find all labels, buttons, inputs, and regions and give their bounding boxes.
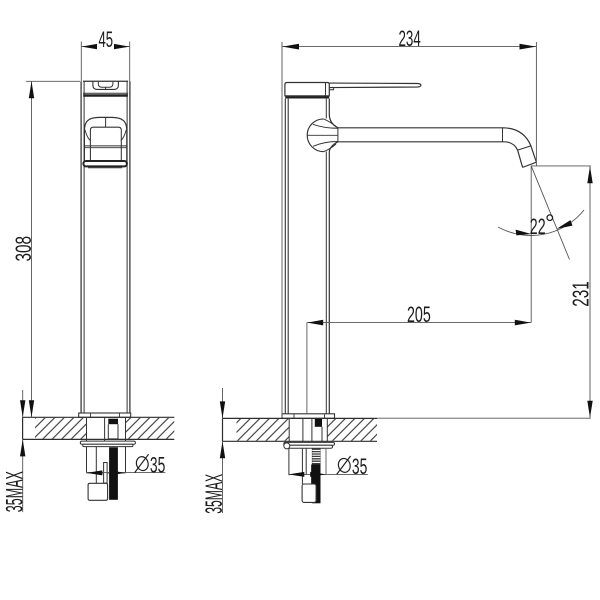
svg-text:35: 35 <box>352 454 367 479</box>
svg-text:35: 35 <box>150 452 165 477</box>
svg-text:22: 22 <box>530 214 546 239</box>
svg-text:35MAX: 35MAX <box>1 471 28 512</box>
svg-text:35MAX: 35MAX <box>201 474 228 514</box>
svg-text:234: 234 <box>399 26 421 51</box>
svg-text:45: 45 <box>99 27 114 52</box>
svg-text:308: 308 <box>11 236 36 262</box>
svg-text:205: 205 <box>407 302 431 327</box>
svg-text:231: 231 <box>567 281 593 307</box>
